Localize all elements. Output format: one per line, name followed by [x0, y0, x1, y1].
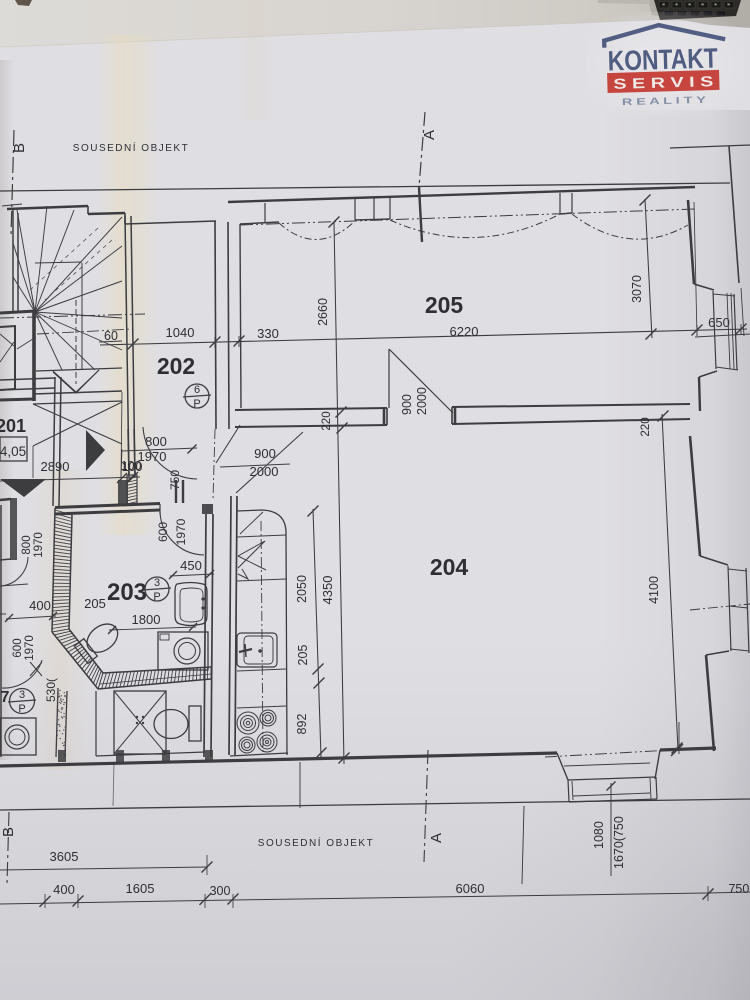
svg-text:205: 205: [84, 596, 106, 611]
svg-text:P: P: [18, 703, 25, 715]
svg-text:1080: 1080: [592, 821, 606, 849]
svg-text:450: 450: [180, 558, 202, 573]
svg-text:205: 205: [425, 292, 464, 318]
svg-text:1670(750: 1670(750: [612, 816, 626, 869]
svg-text:3605: 3605: [50, 849, 79, 864]
svg-text:A: A: [428, 833, 445, 843]
svg-text:530(: 530(: [44, 678, 58, 702]
svg-text:SOUSEDNÍ OBJEKT: SOUSEDNÍ OBJEKT: [73, 141, 189, 154]
svg-text:P: P: [153, 591, 160, 603]
svg-text:6220: 6220: [450, 324, 479, 339]
svg-text:201: 201: [0, 416, 26, 436]
svg-text:202: 202: [157, 353, 195, 379]
svg-text:B: B: [0, 827, 17, 837]
svg-text:S E R V I S: S E R V I S: [613, 74, 714, 93]
svg-text:400: 400: [29, 598, 51, 613]
svg-text:892: 892: [295, 714, 309, 735]
svg-text:600: 600: [156, 522, 170, 542]
svg-text:A: A: [421, 130, 438, 140]
svg-text:600: 600: [12, 638, 24, 657]
svg-text:900: 900: [254, 446, 276, 461]
svg-text:2050: 2050: [295, 575, 309, 603]
svg-text:650: 650: [708, 315, 730, 330]
svg-text:6060: 6060: [456, 881, 485, 896]
svg-text:60: 60: [104, 329, 118, 343]
svg-text:220: 220: [321, 411, 333, 430]
svg-text:7: 7: [1, 689, 10, 706]
svg-text:205: 205: [296, 645, 310, 666]
svg-text:330: 330: [257, 326, 279, 341]
svg-text:2660: 2660: [316, 298, 330, 326]
svg-text:3: 3: [154, 577, 160, 589]
svg-text:3070: 3070: [630, 275, 644, 303]
svg-text:1970: 1970: [24, 635, 36, 661]
svg-text:6: 6: [194, 384, 200, 396]
svg-text:300: 300: [210, 884, 231, 898]
svg-text:P: P: [193, 398, 200, 410]
svg-text:100: 100: [121, 459, 142, 473]
svg-text:2000: 2000: [415, 387, 429, 415]
svg-text:1970: 1970: [33, 532, 45, 558]
svg-text:1605: 1605: [126, 881, 155, 896]
svg-text:1970: 1970: [174, 518, 188, 545]
svg-text:B: B: [11, 143, 28, 153]
svg-text:4350: 4350: [320, 576, 335, 605]
svg-text:4100: 4100: [647, 576, 661, 604]
svg-text:3: 3: [19, 689, 25, 701]
svg-text:800: 800: [21, 535, 33, 554]
svg-text:SOUSEDNÍ OBJEKT: SOUSEDNÍ OBJEKT: [258, 836, 374, 849]
svg-text:1800: 1800: [132, 612, 161, 627]
svg-text:1040: 1040: [166, 325, 195, 340]
svg-text:204: 204: [430, 554, 469, 580]
svg-text:203: 203: [107, 579, 147, 606]
svg-text:2890: 2890: [41, 459, 70, 474]
svg-text:750(: 750(: [728, 882, 750, 896]
svg-text:800: 800: [145, 434, 167, 449]
svg-text:900: 900: [400, 394, 414, 415]
svg-text:220: 220: [640, 417, 652, 436]
svg-text:2000: 2000: [250, 464, 279, 479]
svg-text:4,05: 4,05: [0, 444, 26, 459]
svg-text:400: 400: [53, 882, 75, 897]
